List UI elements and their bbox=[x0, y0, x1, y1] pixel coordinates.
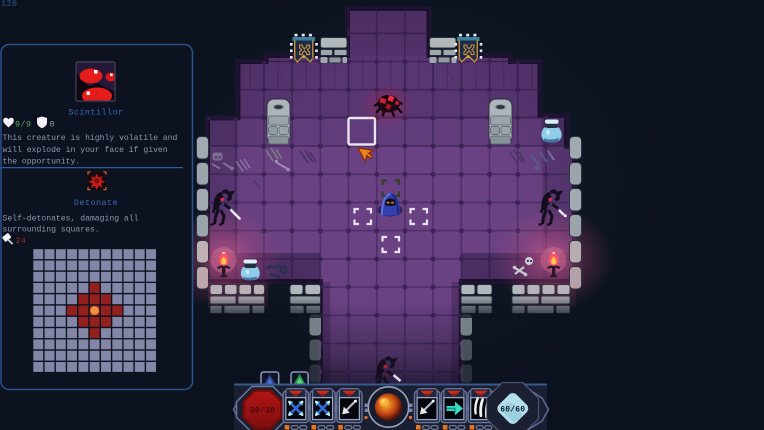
svg-text:This creature is highly volati: This creature is highly volatile and bbox=[3, 134, 178, 143]
svg-text:Self-detonates, damaging all: Self-detonates, damaging all bbox=[3, 214, 139, 223]
svg-text:24: 24 bbox=[16, 237, 27, 246]
svg-text:i20: i20 bbox=[1, 0, 17, 9]
svg-text:Detonate: Detonate bbox=[74, 198, 118, 208]
svg-text:will explode in your face if g: will explode in your face if given bbox=[3, 146, 168, 155]
svg-text:Scintillor: Scintillor bbox=[68, 108, 123, 118]
svg-text:surrounding squares.: surrounding squares. bbox=[3, 226, 100, 235]
svg-text:60/60: 60/60 bbox=[500, 406, 525, 415]
svg-text:30/30: 30/30 bbox=[250, 406, 276, 416]
svg-text:9/9: 9/9 bbox=[15, 120, 31, 130]
svg-text:0: 0 bbox=[50, 120, 55, 130]
svg-text:the opportunity.: the opportunity. bbox=[3, 158, 81, 167]
